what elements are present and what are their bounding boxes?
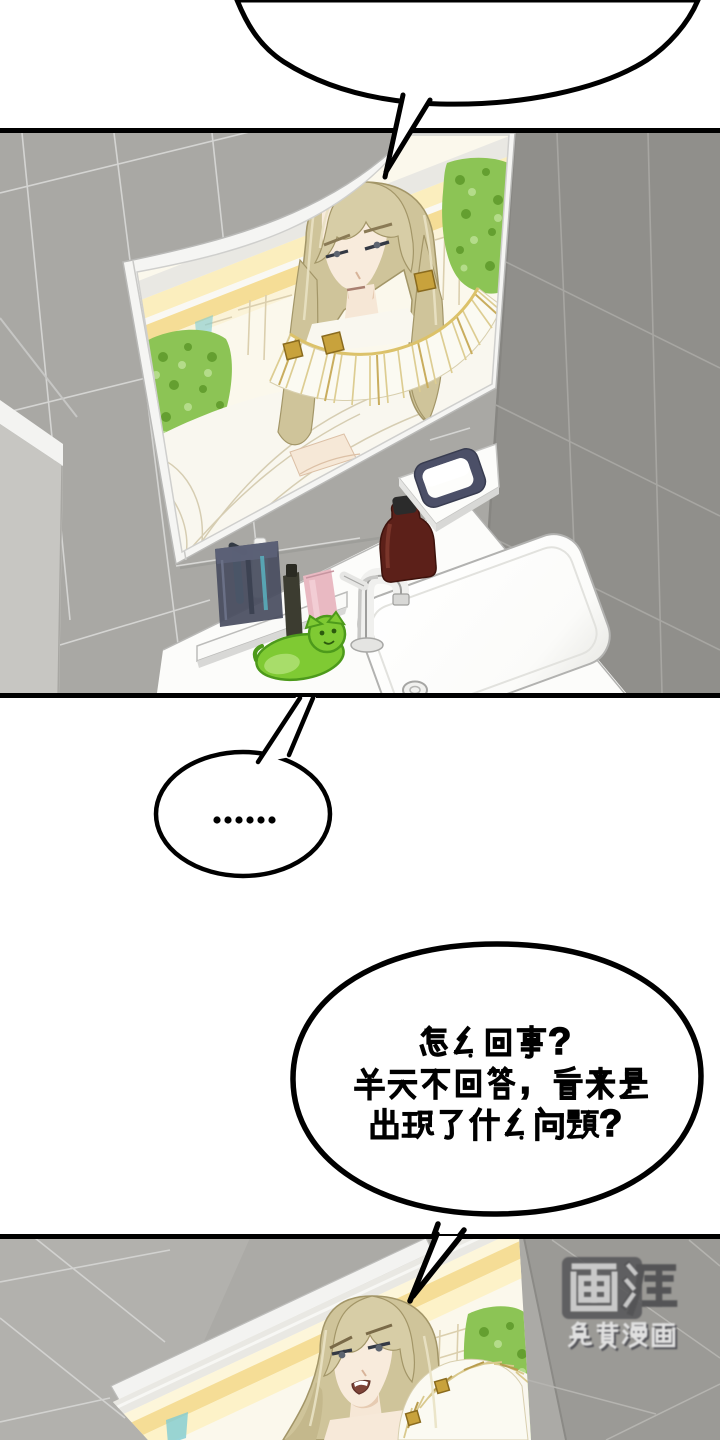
svg-text:,: ,	[520, 1060, 531, 1102]
svg-text:?: ?	[599, 1103, 622, 1145]
svg-text:?: ?	[548, 1021, 571, 1063]
